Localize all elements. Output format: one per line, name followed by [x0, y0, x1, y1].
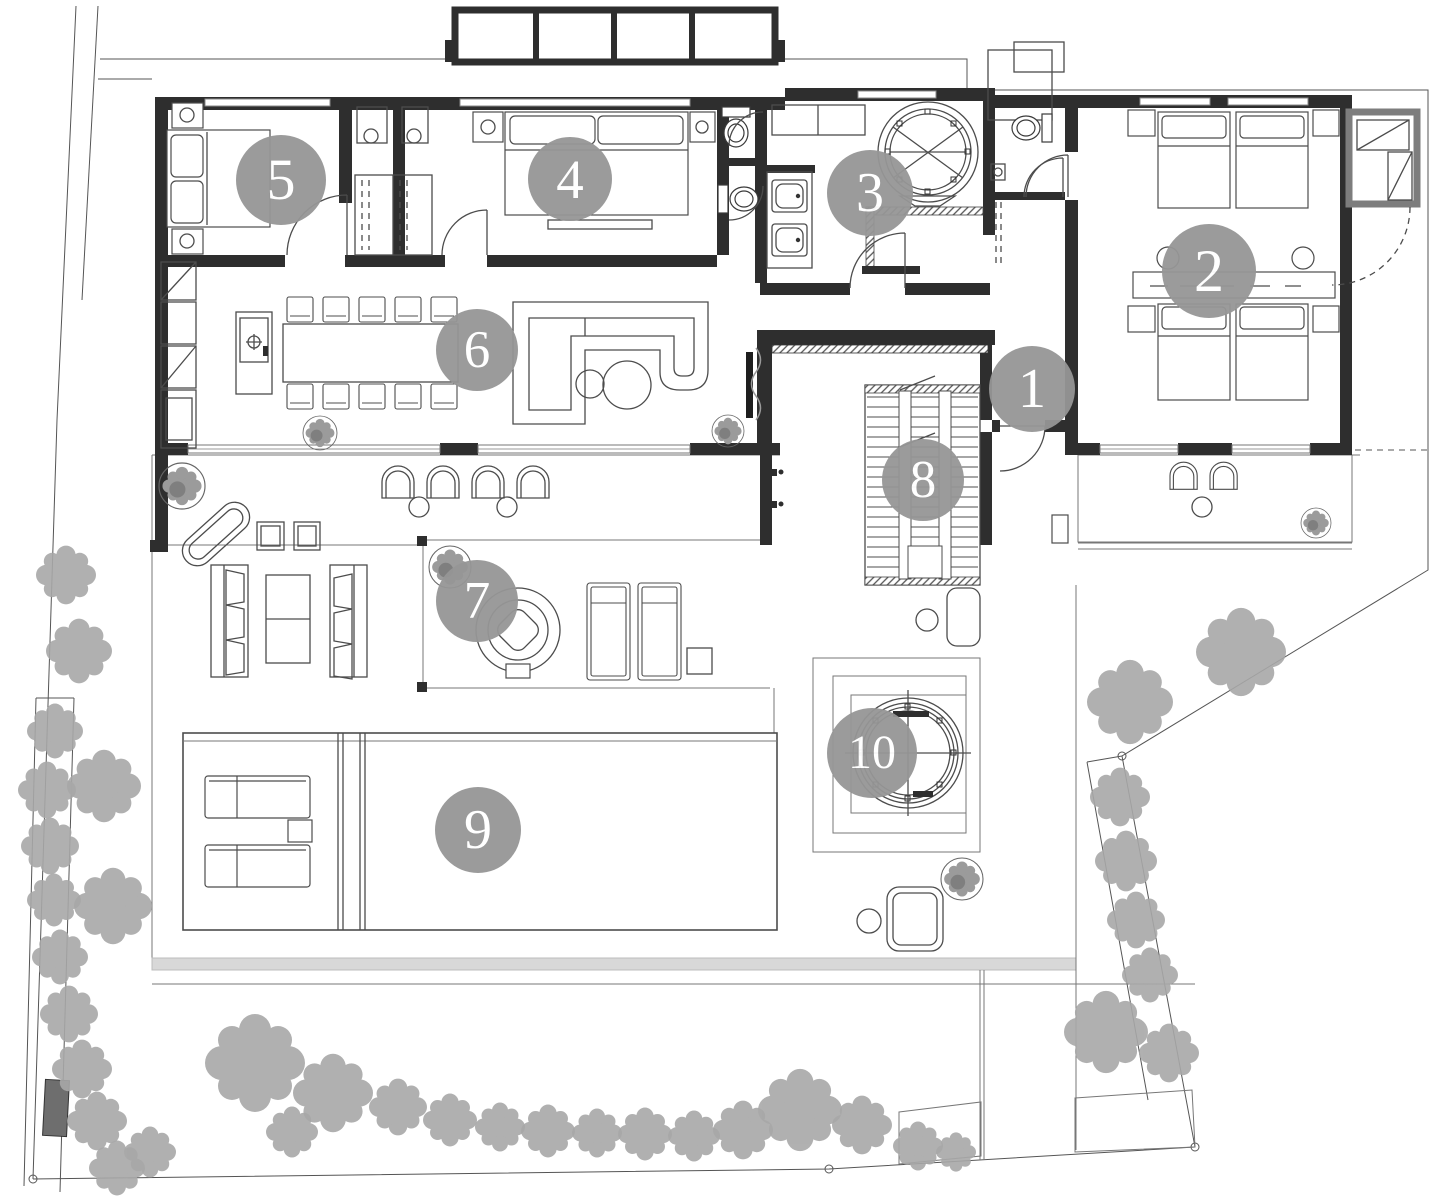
room-marker-4-label: 4	[556, 152, 584, 207]
room-marker-5: 5	[236, 135, 326, 225]
room-marker-1: 1	[989, 346, 1075, 432]
room-marker-7-label: 7	[464, 575, 491, 628]
room-marker-1-label: 1	[1018, 361, 1046, 417]
room-marker-7: 7	[436, 560, 518, 642]
bedroom-2-terrace	[1052, 462, 1237, 543]
screen-window-band	[772, 345, 988, 353]
entrance	[1000, 426, 1045, 471]
room-marker-8-label: 8	[910, 454, 937, 507]
room-marker-6: 6	[436, 309, 518, 391]
floor-plan-page: 1 2 3 4 5 6 7 8 9 10	[0, 0, 1440, 1200]
room-marker-10-label: 10	[848, 729, 896, 777]
room-marker-10: 10	[827, 708, 917, 798]
room-marker-4: 4	[528, 137, 612, 221]
floor-plan-drawing	[0, 0, 1440, 1200]
jacuzzi	[813, 658, 980, 951]
room-marker-2: 2	[1162, 224, 1256, 318]
room-marker-8: 8	[882, 439, 964, 521]
room-marker-9: 9	[435, 787, 521, 873]
room-marker-9-label: 9	[464, 802, 492, 858]
room-marker-2-label: 2	[1194, 241, 1224, 301]
room-marker-6-label: 6	[464, 324, 491, 377]
room-marker-3: 3	[827, 150, 913, 236]
room-marker-3-label: 3	[856, 165, 884, 221]
room-marker-5-label: 5	[267, 151, 296, 209]
